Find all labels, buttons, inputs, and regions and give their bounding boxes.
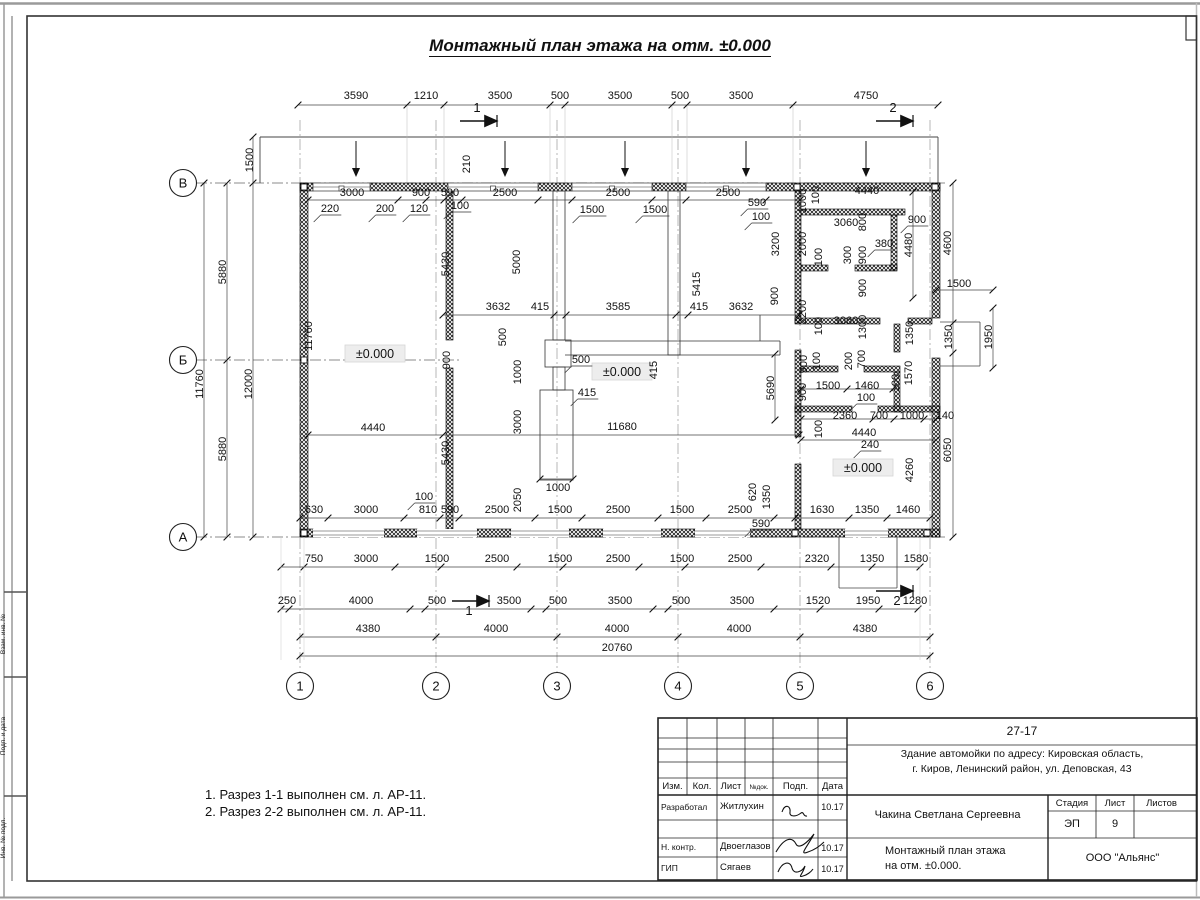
wall	[801, 209, 905, 215]
dim-label: 1500	[425, 553, 449, 565]
tb-name-developer: Житлухин	[720, 801, 764, 812]
dim-label: 5430	[440, 252, 452, 276]
tb-sheets-label: Листов	[1134, 798, 1189, 809]
dim-label: 3500	[497, 595, 521, 607]
dim-label: 1300	[857, 315, 869, 339]
leader-line	[745, 223, 752, 230]
dim-label: 4440	[852, 427, 876, 439]
axis-bubble-label: 5	[796, 679, 803, 694]
dim-label: 120	[410, 203, 428, 215]
dim-label: 1210	[414, 90, 438, 102]
dim-label: 415	[690, 301, 708, 313]
wall	[932, 358, 940, 537]
dim-label: 3000	[512, 410, 524, 434]
dim-label: 1500	[816, 380, 840, 392]
tb-author: Чакина Светлана Сергеевна	[847, 809, 1048, 821]
dim-label: 3060	[834, 217, 858, 229]
dim-label: 415	[578, 387, 596, 399]
door-opening	[511, 529, 569, 537]
axis-bubble-label: 1	[296, 679, 303, 694]
dim-label: 3060	[834, 315, 858, 327]
dim-label: 100	[811, 352, 823, 370]
margin-label: Подп. и дата	[0, 696, 12, 776]
wall	[652, 183, 686, 191]
dim-label: 590	[441, 504, 459, 516]
dim-label: 1520	[806, 595, 830, 607]
dim-label: 900	[857, 246, 869, 264]
dim-label: 2500	[606, 553, 630, 565]
dim-label: 20760	[602, 642, 633, 654]
section-label: 2	[893, 593, 900, 608]
wall	[932, 183, 940, 318]
dim-label: 4440	[855, 185, 879, 197]
dim-label: 100	[810, 186, 822, 204]
leader-line	[854, 451, 861, 458]
dim-label: 200	[376, 203, 394, 215]
wall	[384, 529, 417, 537]
drawing-sheet: ±0.000±0.000±0.0001212ВБА123456359012103…	[0, 0, 1200, 900]
dim-label: 4480	[903, 233, 915, 257]
dim-label: 900	[412, 187, 430, 199]
leader-line	[408, 503, 415, 510]
dim-label: 210	[461, 155, 473, 173]
dim-label: 3000	[354, 553, 378, 565]
dim-label: 200	[843, 352, 855, 370]
axis-bubble-label: 2	[432, 679, 439, 694]
dim-label: 1950	[856, 595, 880, 607]
dim-label: 3632	[486, 301, 510, 313]
dim-label: 2500	[606, 187, 630, 199]
dim-label: 100	[451, 200, 469, 212]
dim-label: 1000	[512, 360, 524, 384]
dim-label: 1460	[855, 380, 879, 392]
axis-bubble-label: 3	[553, 679, 560, 694]
elevation-label: ±0.000	[603, 365, 641, 379]
dim-label: 3000	[354, 504, 378, 516]
axis-bubble-label: А	[179, 530, 188, 545]
dim-label: 500	[497, 328, 509, 346]
dim-label: 2500	[485, 504, 509, 516]
dim-label: 750	[305, 553, 323, 565]
object-address-line1: Здание автомойки по адресу: Кировская об…	[847, 748, 1197, 760]
dim-label: 1500	[548, 504, 572, 516]
dim-label: 500	[572, 354, 590, 366]
dim-label: 5690	[765, 376, 777, 400]
dim-label: 2500	[485, 553, 509, 565]
doc-number: 27-17	[847, 724, 1197, 738]
tb-stage-label: Стадия	[1048, 798, 1096, 809]
tb-date-gip: 10.17	[818, 864, 847, 874]
dim-label: 1350	[855, 504, 879, 516]
dim-label: 3500	[488, 90, 512, 102]
wall	[766, 183, 940, 191]
tb-company: ООО "Альянс"	[1048, 852, 1197, 864]
dim-label: 2500	[606, 504, 630, 516]
wall	[477, 529, 511, 537]
dim-label: 1350	[943, 325, 955, 349]
dim-label: 5880	[217, 260, 229, 284]
dim-label: 590	[748, 197, 766, 209]
tb-col-podp: Подп.	[773, 781, 818, 792]
dim-label: 415	[648, 361, 660, 379]
dim-label: 250	[278, 595, 296, 607]
dim-label: 5000	[511, 250, 523, 274]
wall	[855, 265, 897, 271]
column-marker	[301, 357, 307, 363]
dim-label: 800	[857, 213, 869, 231]
dim-label: 2360	[833, 410, 857, 422]
leader-line	[741, 209, 748, 216]
axis-bubble-label: В	[179, 176, 188, 191]
dim-label: 1350	[904, 321, 916, 345]
door-opening	[313, 529, 384, 537]
elevation-label: ±0.000	[356, 347, 394, 361]
elevation-label: ±0.000	[844, 461, 882, 475]
dim-label: 2320	[805, 553, 829, 565]
leader-line	[573, 216, 580, 223]
dim-label: 4000	[605, 623, 629, 635]
wall	[569, 529, 603, 537]
dim-label: 12000	[243, 369, 255, 400]
dim-label: 100	[813, 317, 825, 335]
dim-label: 2500	[728, 504, 752, 516]
dim-label: 1350	[761, 485, 773, 509]
dim-label: 1280	[903, 595, 927, 607]
tb-name-gip: Сягаев	[720, 862, 751, 873]
dim-label: 3632	[729, 301, 753, 313]
dim-label: 630	[305, 504, 323, 516]
dim-label: 5880	[217, 437, 229, 461]
dim-label: 11680	[607, 421, 637, 433]
dim-label: 1500	[947, 278, 971, 290]
dim-label: 1500	[580, 204, 604, 216]
dim-label: 1000	[546, 482, 570, 494]
dim-label: 100	[752, 211, 770, 223]
dim-label: 1460	[896, 504, 920, 516]
tb-sheet-label: Лист	[1096, 798, 1134, 809]
dim-label: 1500	[670, 553, 694, 565]
dim-label: 4260	[904, 458, 916, 482]
dim-label: 380	[875, 238, 893, 250]
column-marker	[792, 530, 798, 536]
tb-sheet-value: 9	[1096, 818, 1134, 830]
column-marker	[932, 184, 938, 190]
dim-label: 2500	[728, 553, 752, 565]
dim-label: 700	[870, 410, 888, 422]
wall	[864, 366, 900, 372]
tb-date-ncontrol: 10.17	[818, 843, 847, 853]
dim-label: 900	[769, 287, 781, 305]
dim-label: 1500	[244, 148, 256, 172]
dim-label: 1500	[670, 504, 694, 516]
dim-label: 100	[890, 374, 902, 392]
wall	[894, 324, 900, 352]
dim-label: 500	[671, 90, 689, 102]
leader-line	[901, 226, 908, 233]
dim-label: 100	[813, 248, 825, 266]
column-marker	[924, 530, 930, 536]
equipment	[553, 367, 565, 390]
dim-label: 11760	[194, 369, 206, 399]
dim-label: 300	[842, 246, 854, 264]
axis-bubble-label: Б	[179, 353, 188, 368]
dim-label: 1500	[643, 204, 667, 216]
column-marker	[301, 530, 307, 536]
tb-date-developer: 10.17	[818, 802, 847, 812]
dim-label: 1000	[900, 410, 924, 422]
dim-label: 4000	[727, 623, 751, 635]
dim-label: 900	[857, 279, 869, 297]
page-title: Монтажный план этажа на отм. ±0.000	[0, 36, 1200, 56]
tb-col-list: Лист	[717, 781, 745, 792]
dim-label: 4000	[484, 623, 508, 635]
dim-label: 1950	[983, 325, 995, 349]
dim-label: 500	[672, 595, 690, 607]
section-label: 2	[889, 100, 896, 115]
axis-bubble-label: 4	[674, 679, 681, 694]
signature	[776, 834, 824, 853]
dim-label: 620	[747, 483, 759, 501]
dim-label: 100	[415, 491, 433, 503]
dim-label: 500	[428, 595, 446, 607]
section-label: 1	[473, 100, 480, 115]
tb-col-data: Дата	[818, 781, 847, 792]
wall	[661, 529, 695, 537]
dim-label: 2500	[716, 187, 740, 199]
dim-label: 100	[857, 392, 875, 404]
door-opening	[695, 529, 750, 537]
dim-label: 3500	[608, 595, 632, 607]
tb-role-gip: ГИП	[661, 863, 678, 873]
door-opening	[845, 529, 888, 537]
dim-label: 4380	[356, 623, 380, 635]
dim-label: 3200	[770, 232, 782, 256]
leader-line	[571, 399, 578, 406]
door-opening	[417, 529, 477, 537]
tb-col-ndok: №док.	[745, 784, 773, 791]
dim-label: 240	[861, 439, 879, 451]
dim-label: 590	[752, 518, 770, 530]
dim-label: 140	[936, 410, 954, 422]
dim-label: 4440	[361, 422, 385, 434]
dim-label: 3500	[729, 90, 753, 102]
dim-label: 700	[856, 350, 868, 368]
dim-label: 11760	[303, 321, 315, 351]
dim-label: 590	[441, 187, 459, 199]
dim-label: 1630	[810, 504, 834, 516]
dim-label: 4000	[349, 595, 373, 607]
dim-label: 5430	[440, 441, 452, 465]
wall	[538, 183, 572, 191]
leader-line	[403, 215, 410, 222]
tb-name-ncontrol: Двоеглазов	[720, 841, 771, 852]
wall	[795, 464, 801, 529]
dim-label: 1580	[904, 553, 928, 565]
notes-text: 1. Разрез 1-1 выполнен см. л. АР-11. 2. …	[205, 786, 426, 820]
tb-sheet-title-line2: на отм. ±0.000.	[885, 860, 961, 872]
dim-label: 900	[441, 351, 453, 369]
tb-stage-value: ЭП	[1048, 818, 1096, 830]
dim-label: 900	[798, 355, 810, 373]
dim-label: 220	[321, 203, 339, 215]
leader-line	[369, 215, 376, 222]
signature	[778, 863, 813, 876]
door-opening	[603, 529, 661, 537]
equipment	[545, 340, 571, 367]
tb-col-kol: Кол.	[687, 781, 717, 792]
dim-label: 3590	[344, 90, 368, 102]
object-address-line2: г. Киров, Ленинский район, ул. Деповская…	[847, 763, 1197, 775]
dim-label: 4380	[853, 623, 877, 635]
dim-label: 2500	[493, 187, 517, 199]
axis-bubble-label: 6	[926, 679, 933, 694]
dim-label: 100	[813, 420, 825, 438]
dim-label: 1350	[860, 553, 884, 565]
dim-label: 1000	[797, 189, 809, 213]
dim-label: 5415	[691, 272, 703, 296]
section-label: 1	[465, 603, 472, 618]
dim-label: 500	[549, 595, 567, 607]
margin-label: Взам. инв. №	[0, 594, 12, 674]
dim-label: 500	[551, 90, 569, 102]
dim-label: 3500	[608, 90, 632, 102]
dim-label: 900	[797, 383, 809, 401]
dim-label: 2050	[512, 488, 524, 512]
tb-sheet-title-line1: Монтажный план этажа	[885, 845, 1006, 857]
leader-line	[636, 216, 643, 223]
column-marker	[301, 184, 307, 190]
dim-label: 3500	[730, 595, 754, 607]
dim-label: 3000	[340, 187, 364, 199]
dim-label: 2000	[797, 232, 809, 256]
tb-col-izm: Изм.	[658, 781, 687, 792]
leader-line	[314, 215, 321, 222]
dim-label: 4600	[942, 231, 954, 255]
dim-label: 810	[419, 504, 437, 516]
dim-label: 1500	[548, 553, 572, 565]
dim-label: 4750	[854, 90, 878, 102]
signature	[782, 806, 807, 816]
dim-label: 415	[531, 301, 549, 313]
wall	[370, 183, 448, 191]
margin-label: Инв. № подл.	[0, 798, 12, 878]
dim-label: 1570	[903, 361, 915, 385]
dim-label: 6050	[942, 438, 954, 462]
dim-label: 900	[908, 214, 926, 226]
dim-label: 3585	[606, 301, 630, 313]
dim-label: 2200	[797, 300, 809, 324]
tb-role-developer: Разработал	[661, 802, 707, 812]
tb-role-ncontrol: Н. контр.	[661, 842, 696, 852]
